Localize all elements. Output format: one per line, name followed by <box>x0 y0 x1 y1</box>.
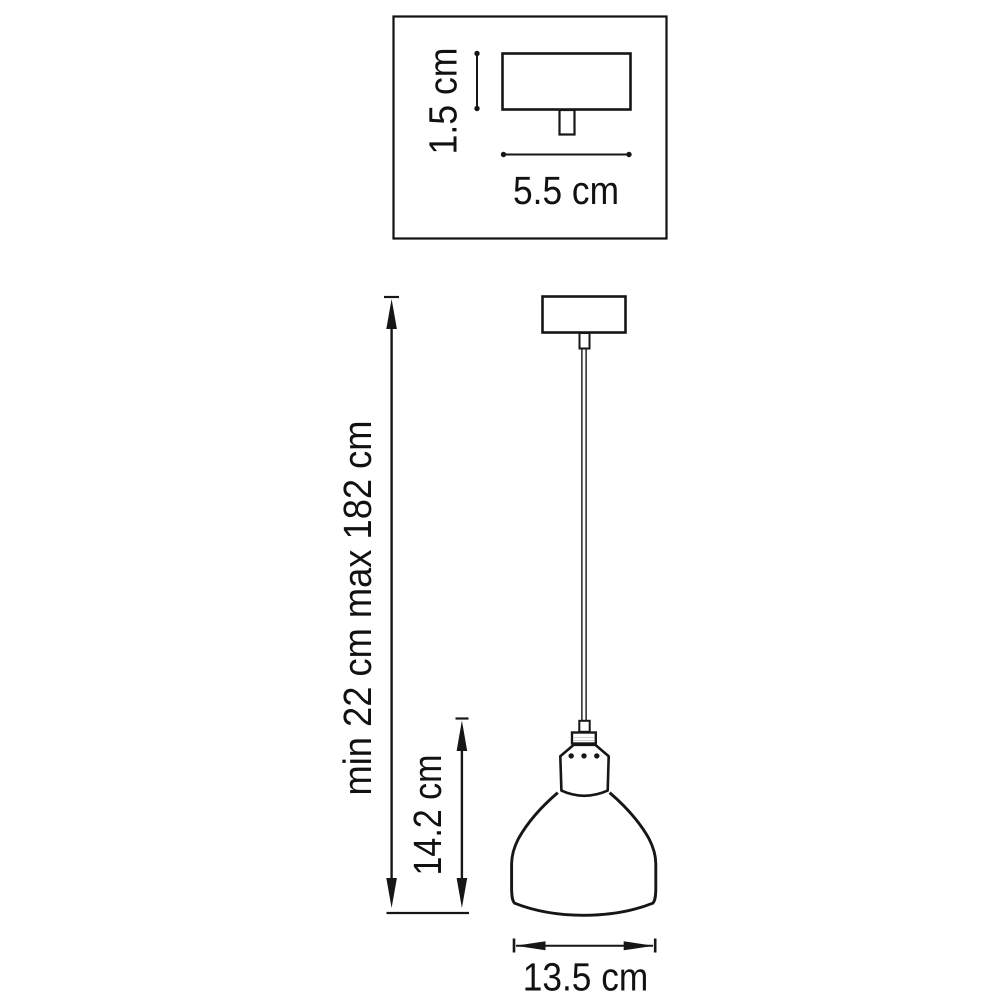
svg-text:14.2 cm: 14.2 cm <box>406 755 450 876</box>
svg-text:min 22 cm max 182 cm: min 22 cm max 182 cm <box>336 421 380 796</box>
svg-text:1.5 cm: 1.5 cm <box>422 48 466 155</box>
svg-text:13.5 cm: 13.5 cm <box>523 956 649 1000</box>
svg-text:5.5 cm: 5.5 cm <box>513 169 619 213</box>
